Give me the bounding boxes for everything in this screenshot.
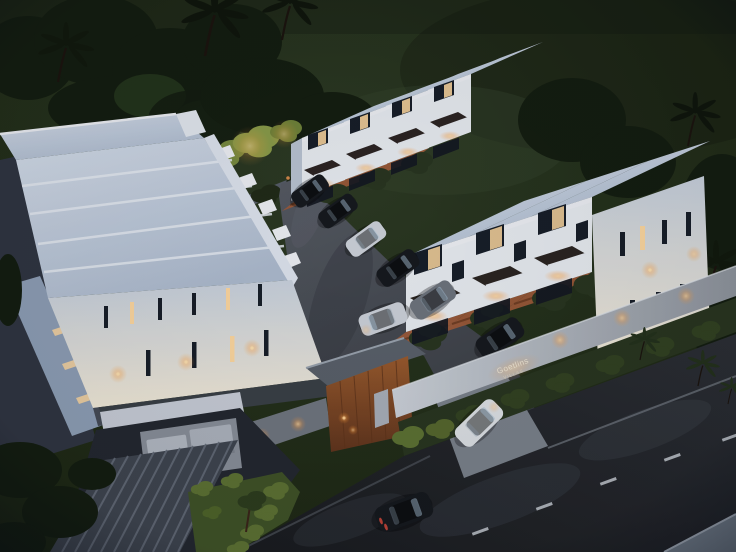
- vignette: [0, 0, 736, 552]
- atmosphere: [0, 0, 736, 552]
- estate-aerial-render: Goetlins VILLAS: [0, 0, 736, 552]
